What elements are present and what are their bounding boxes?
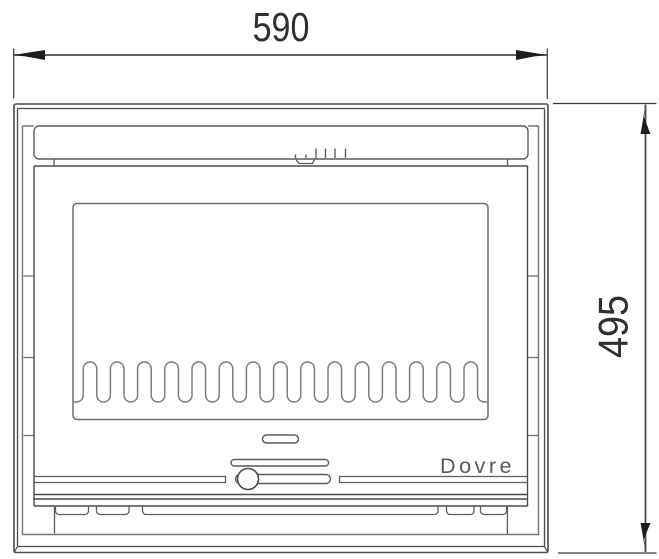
svg-text:495: 495 — [591, 295, 637, 358]
svg-text:Dovre: Dovre — [440, 455, 515, 478]
svg-text:590: 590 — [253, 4, 310, 50]
